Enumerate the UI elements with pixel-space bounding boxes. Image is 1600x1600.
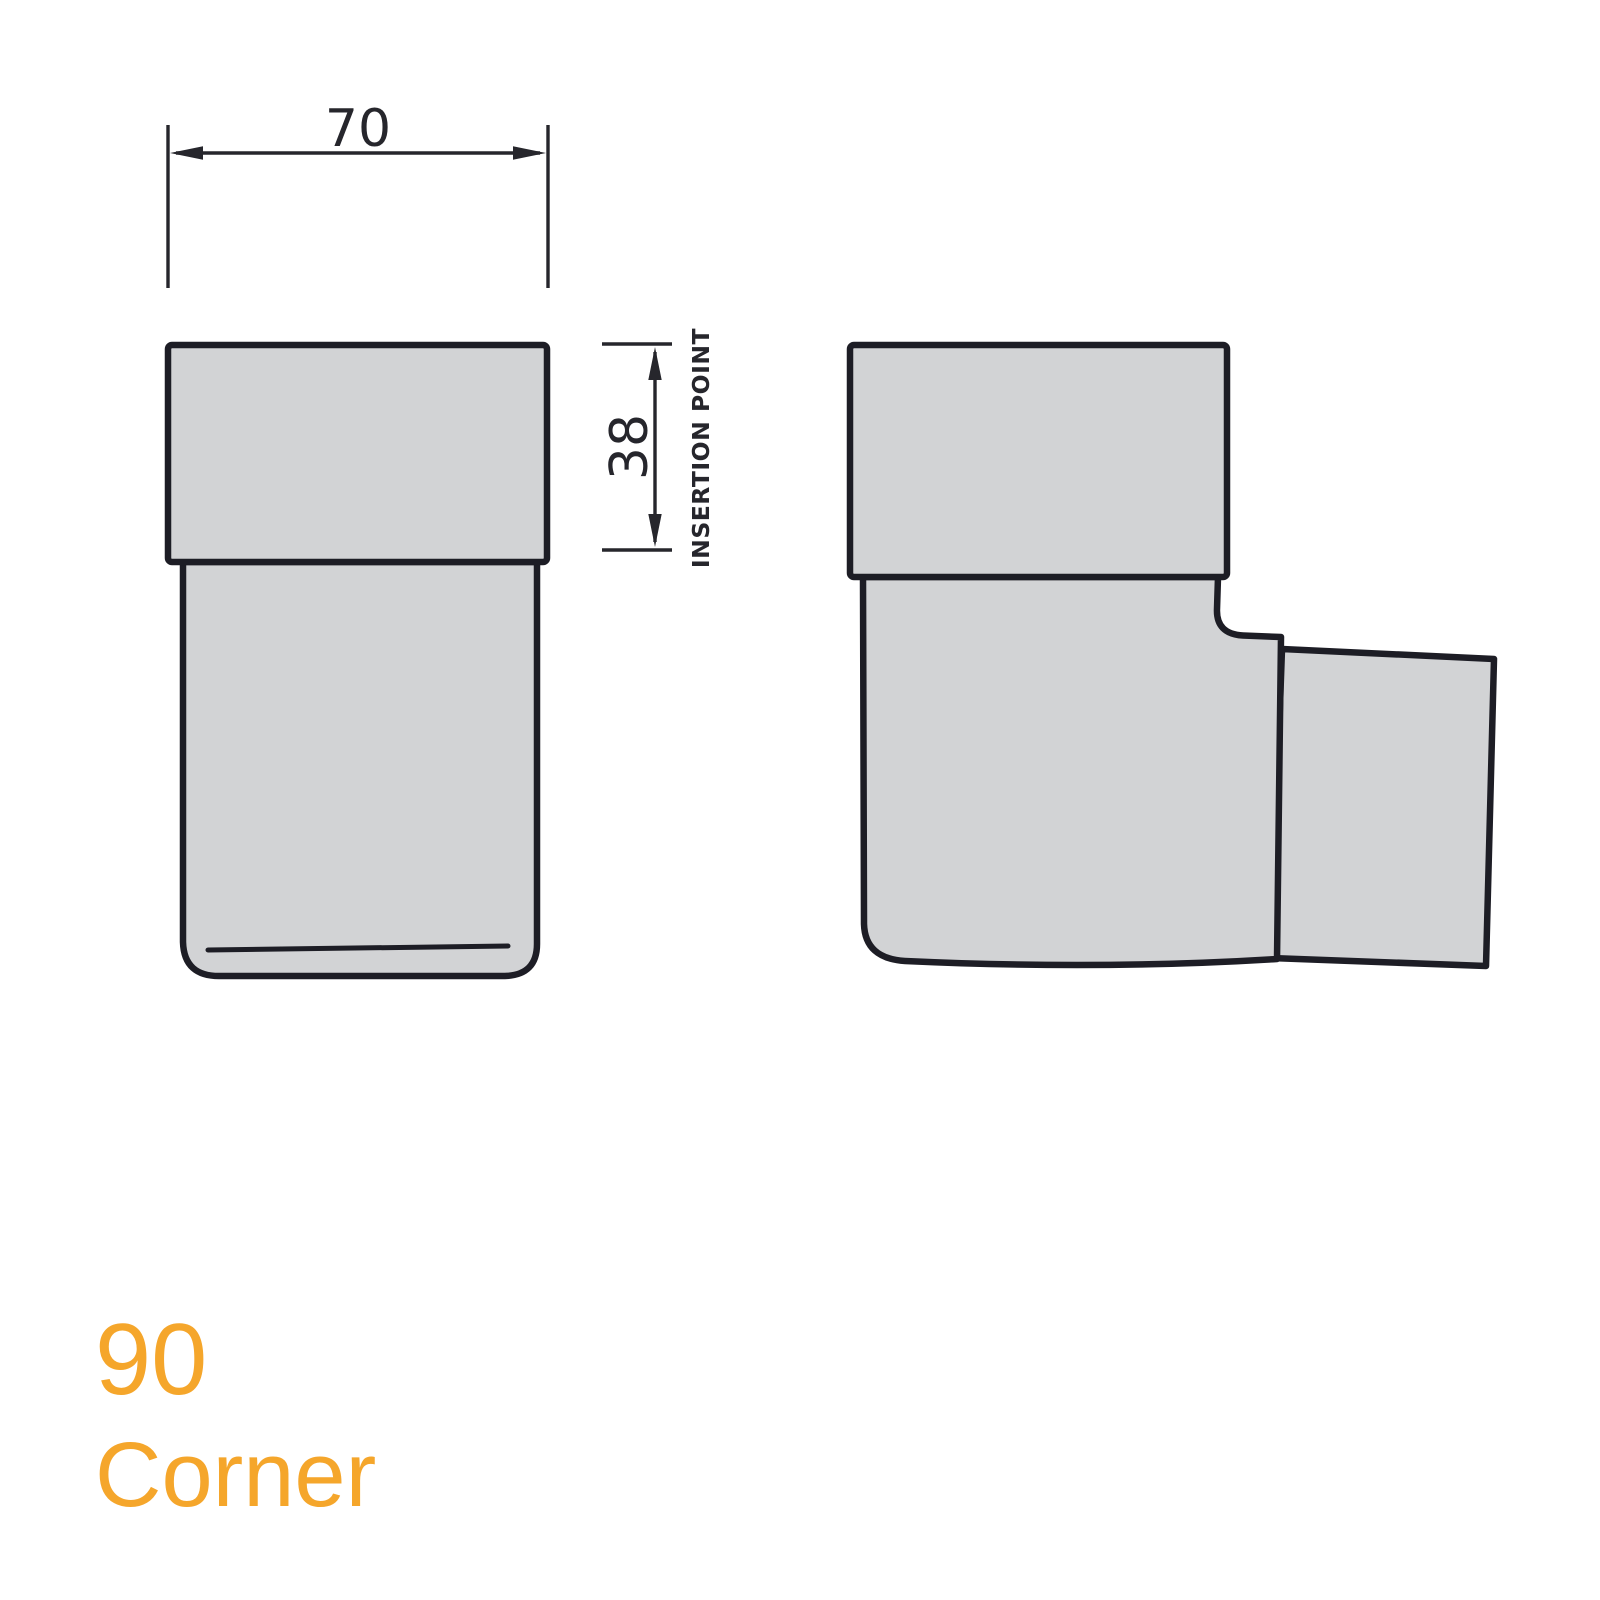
side-view-outlet [1271,649,1494,966]
technical-drawing-page: 70 38 INSERTION POINT 90 Corner [0,0,1600,1600]
product-title-line1: 90 [95,1310,376,1411]
width-dimension-value: 70 [325,99,391,159]
side-view-socket [850,345,1227,577]
insertion-depth-value: 38 [600,414,660,480]
product-title: 90 Corner [95,1310,376,1521]
side-view-body [863,577,1281,965]
front-view [168,345,547,976]
insertion-point-label: INSERTION POINT [687,328,715,568]
insertion-depth-dimension: 38 INSERTION POINT [600,328,715,568]
product-title-line2: Corner [95,1429,376,1521]
side-view [850,345,1494,966]
width-dimension: 70 [168,99,548,288]
front-view-body [183,562,537,976]
arrowhead-right [513,146,546,159]
front-view-socket [168,345,547,562]
arrowhead-left [170,146,203,159]
arrowhead-up [648,347,661,380]
arrowhead-down [648,514,661,547]
